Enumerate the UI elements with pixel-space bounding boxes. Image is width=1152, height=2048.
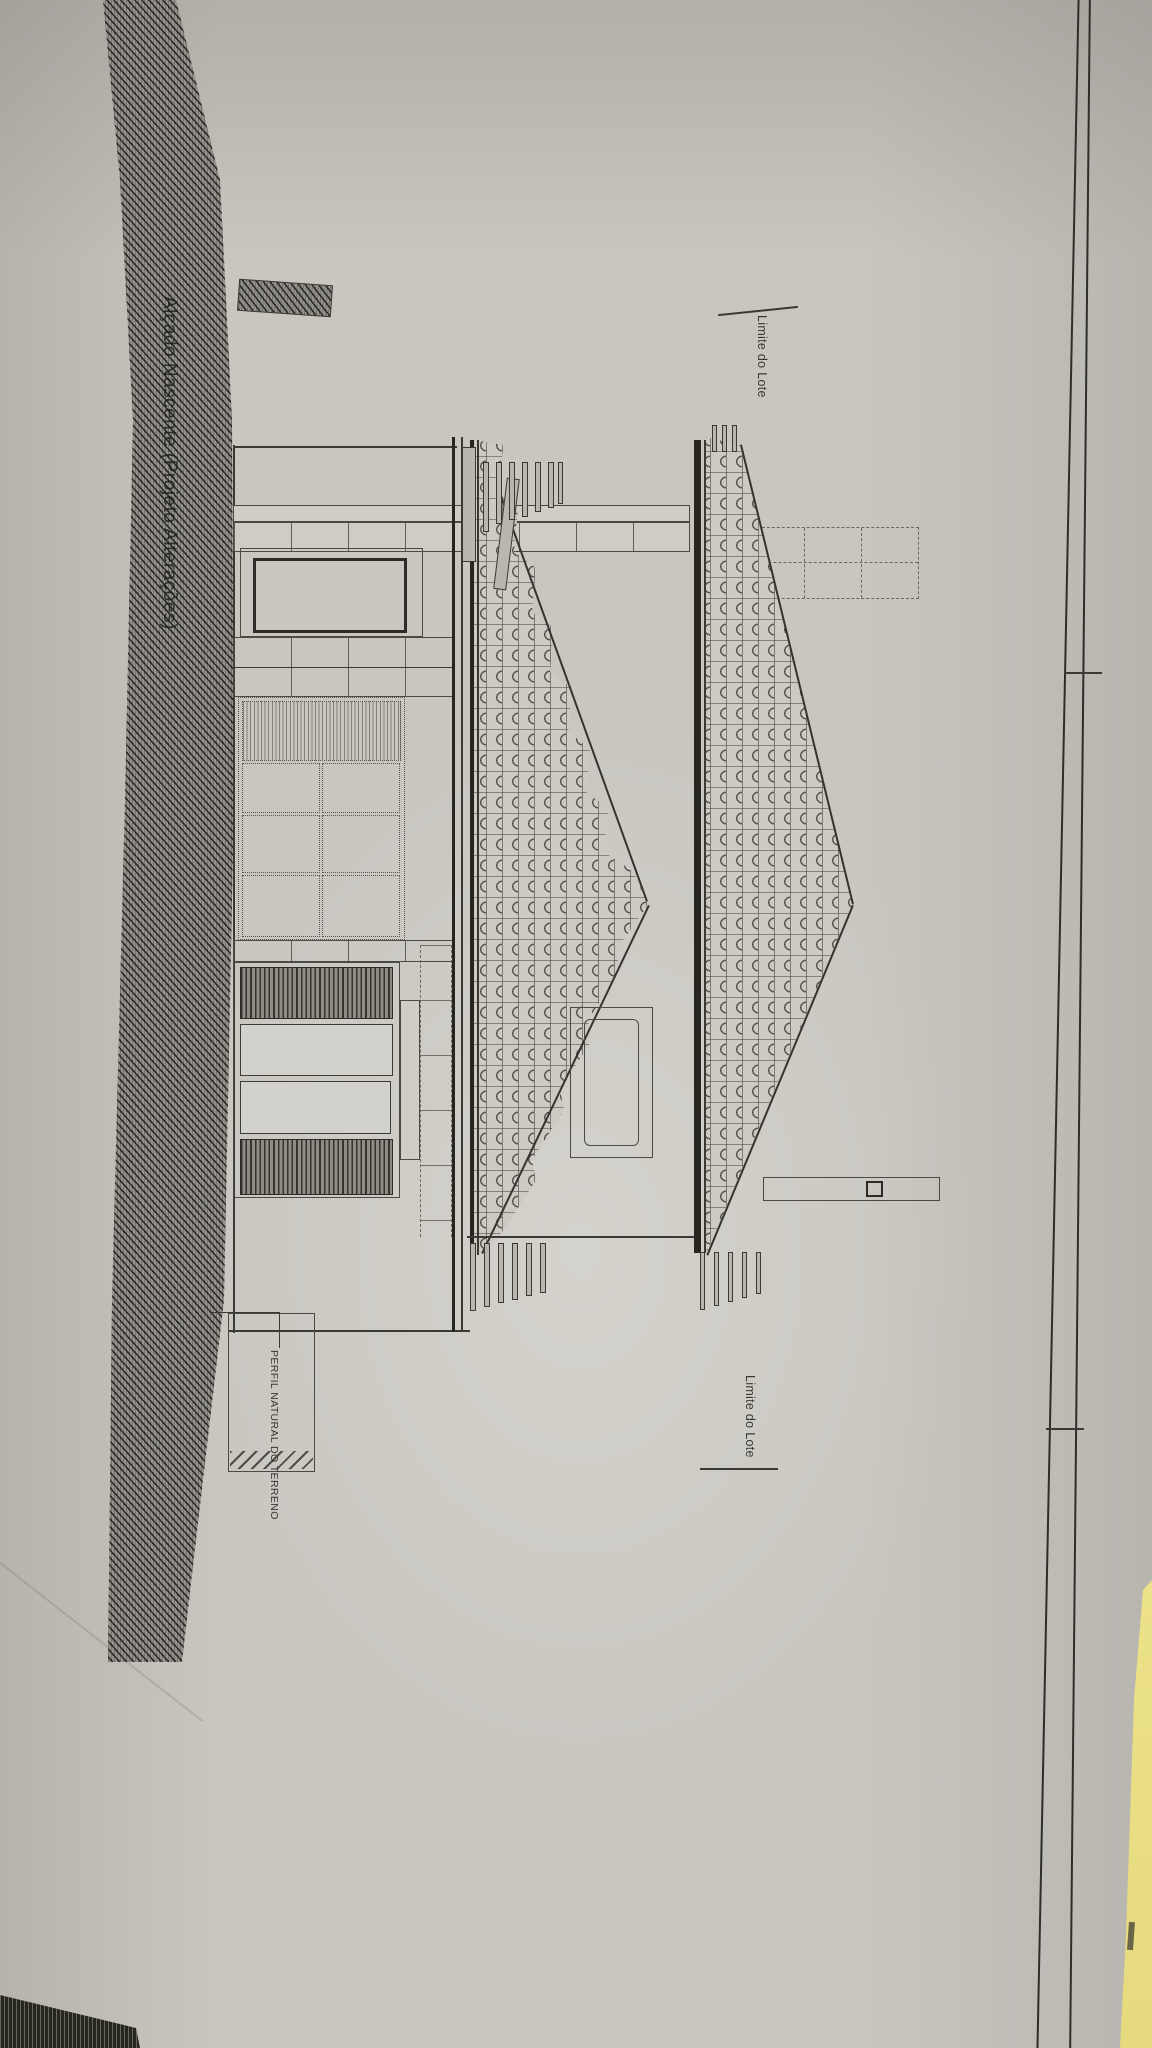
brick-band — [233, 637, 455, 697]
roof-front-eaves-line-2 — [477, 440, 479, 1255]
rear-ridge-comb-bar-top — [732, 425, 737, 452]
sheet-edge-tick-lower — [1046, 1428, 1084, 1430]
door-jamb-strip — [400, 1000, 420, 1160]
door-plain-panel — [240, 1024, 393, 1076]
ridge-comb-bar — [483, 462, 489, 532]
photo-of-elevation-drawing: Alçado Nascente (Projeto Alterações) — [0, 0, 1152, 2048]
sheet-edge-tick-upper — [1064, 672, 1102, 674]
tall-chimney-opening — [866, 1181, 883, 1197]
hidden-balustrade-dashed-midline — [748, 562, 918, 563]
roof-rear-ridge-line — [704, 440, 706, 1253]
terrain-profile-label: PERFIL NATURAL DO TERRENO — [268, 1350, 280, 1520]
ridge-comb-bar-bottom — [484, 1243, 490, 1307]
ridge-comb-bar — [558, 462, 563, 504]
ridge-comb-bar — [548, 462, 554, 508]
ridge-comb-bar-bottom — [512, 1243, 518, 1300]
door-slat-panel — [240, 967, 393, 1019]
window-pane — [242, 763, 320, 813]
ridge-comb-bar-bottom — [470, 1243, 476, 1311]
window-pane — [322, 875, 400, 937]
window-pane — [242, 875, 320, 937]
facade-left-edge-line — [233, 445, 235, 1333]
ridge-comb-bar-bottom — [498, 1243, 504, 1303]
roof-base-connector-line — [467, 1236, 695, 1238]
hidden-balustrade-dashed-joint — [861, 528, 862, 598]
wall-section-hatch-bar — [237, 279, 333, 317]
drawing-title: Alçado Nascente (Projeto Alterações) — [158, 296, 180, 630]
hidden-balustrade-dashed-joint — [804, 528, 805, 598]
ridge-comb-bar-bottom — [526, 1243, 532, 1296]
rear-ridge-comb-bar-bottom — [756, 1252, 761, 1294]
wall-corner-line-light — [461, 437, 463, 1332]
window-pane — [322, 763, 400, 813]
facade-top-line — [235, 446, 457, 448]
window-pane-grid — [242, 763, 401, 938]
ridge-comb-bar — [496, 462, 502, 524]
ridge-end-cap — [462, 447, 476, 562]
chimney-between-roofs-inner — [584, 1019, 639, 1146]
rear-ridge-comb-bar-bottom — [728, 1252, 733, 1302]
rear-ridge-comb-bar-top — [722, 425, 727, 452]
rear-ridge-comb-bar-bottom — [714, 1252, 719, 1306]
ridge-comb-bar — [509, 462, 515, 520]
roof-front-eaves-line — [470, 440, 474, 1255]
door-slat-panel — [240, 1139, 393, 1195]
door-plain-panel — [240, 1081, 391, 1134]
window-shutter-box — [242, 701, 401, 761]
rear-ridge-comb-bar-bottom — [700, 1252, 705, 1310]
lot-boundary-tick-bottom — [700, 1468, 778, 1470]
ridge-comb-bar — [522, 462, 528, 517]
lot-boundary-label-bottom: Limite do Lote — [743, 1375, 757, 1458]
window-pane — [322, 815, 400, 873]
rear-ridge-comb-bar-bottom — [742, 1252, 747, 1298]
rear-ridge-comb-bar-top — [712, 425, 717, 452]
terrain-profile-leader-horizontal — [212, 1312, 280, 1313]
terrain-profile-leader-vertical — [279, 1312, 280, 1348]
brick-band-midline — [234, 667, 454, 668]
roof-rear-ridge-shadow-line — [694, 440, 701, 1253]
tall-chimney — [763, 1177, 940, 1201]
lot-boundary-label-top: Limite do Lote — [755, 315, 769, 398]
ridge-comb-bar — [535, 462, 541, 512]
ridge-comb-bar-bottom — [540, 1243, 546, 1293]
wall-corner-line-heavy — [452, 437, 455, 1332]
window-pane — [242, 815, 320, 873]
upper-opening-frame — [253, 558, 407, 633]
dashed-brick-column — [420, 945, 452, 1237]
